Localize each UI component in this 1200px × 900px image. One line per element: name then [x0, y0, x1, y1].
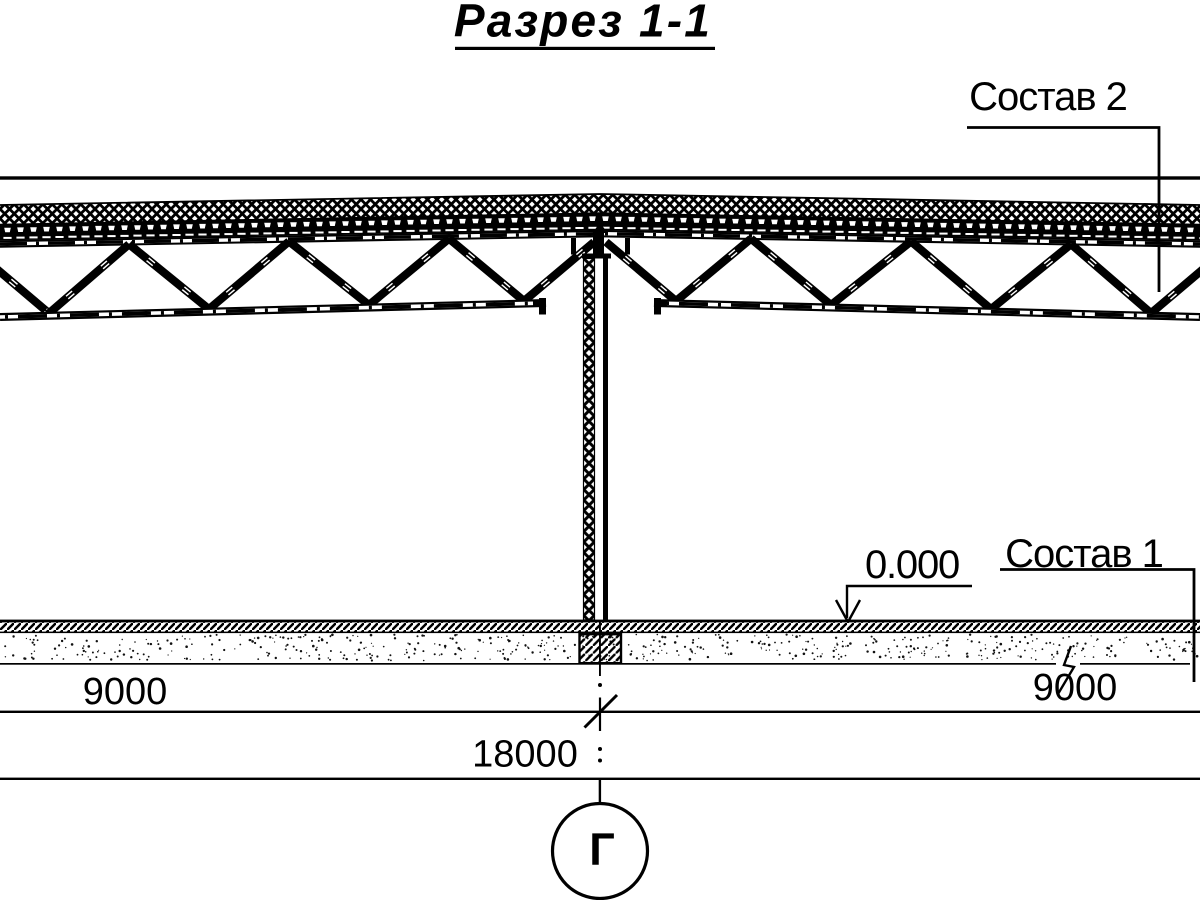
svg-text:Разрез 1-1: Разрез 1-1 — [454, 0, 712, 47]
svg-text:9000: 9000 — [1033, 667, 1118, 709]
svg-text:18000: 18000 — [472, 734, 578, 776]
svg-text:9000: 9000 — [83, 671, 168, 713]
svg-text:Г: Г — [589, 824, 615, 875]
svg-text:Состав 2: Состав 2 — [969, 75, 1127, 119]
svg-text:0.000: 0.000 — [865, 543, 959, 587]
